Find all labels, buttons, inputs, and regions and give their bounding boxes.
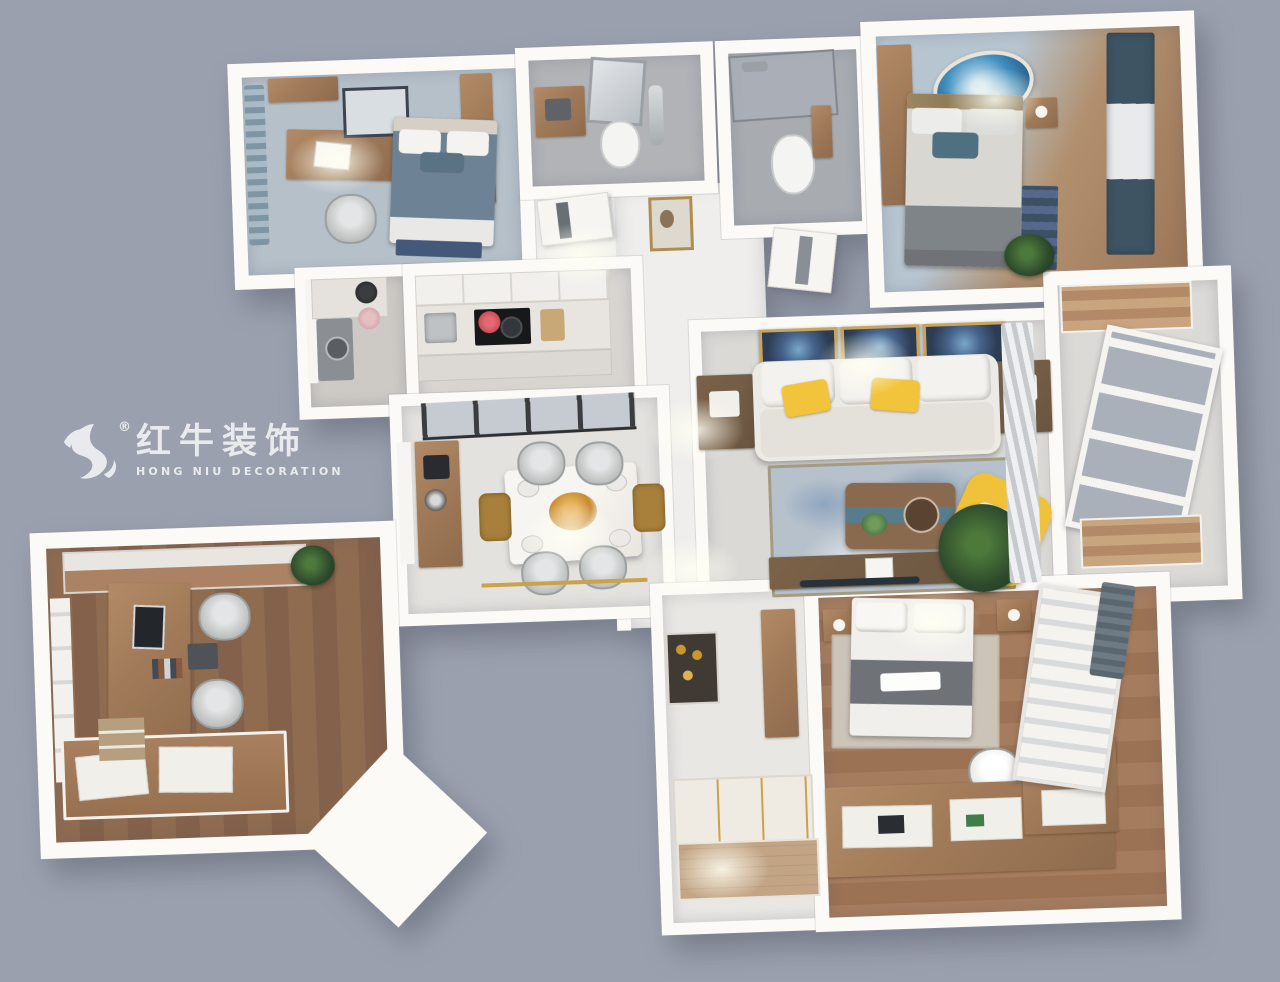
shower-set	[648, 85, 664, 145]
desk-books	[152, 658, 183, 679]
yellow-pillow-2	[870, 377, 920, 412]
side-table-left	[696, 374, 755, 450]
watermark: ® 红牛装饰 HONG NIU DECORATION	[60, 420, 330, 500]
shelf-niche	[811, 105, 833, 158]
laptop	[313, 141, 352, 171]
study-chair-1	[198, 592, 252, 642]
registered-trademark: ®	[118, 420, 131, 435]
wall-shelf	[268, 76, 339, 102]
brand-name-english: HONG NIU DECORATION	[136, 465, 344, 478]
nightstand-right	[996, 598, 1031, 631]
mirror	[586, 57, 646, 127]
vanity-cabinet	[534, 86, 586, 138]
monitor	[132, 605, 166, 650]
mattress-pad-2	[159, 747, 233, 793]
gold-armchair-left	[478, 493, 512, 542]
study-wall-shelf	[187, 643, 218, 670]
tatami-bedroom-bed	[850, 598, 974, 738]
tatami-bed	[61, 730, 290, 820]
brand-name-chinese: 红牛装饰	[136, 424, 344, 461]
sink	[424, 312, 457, 343]
gold-framed-art	[648, 196, 694, 252]
toilet-2	[770, 134, 816, 195]
toilet	[599, 120, 641, 169]
master-bed	[904, 94, 1023, 268]
study-chair-2	[191, 678, 245, 730]
balcony-cabinet-bottom	[1080, 514, 1204, 568]
floral-centerpiece	[548, 491, 599, 532]
display-niche	[665, 631, 719, 705]
desk-chair	[324, 193, 378, 245]
bed-rug	[396, 239, 483, 258]
dining-chair-1	[517, 441, 567, 487]
floorplan-render-page: { "watermark": { "brand_cn": "红牛装饰", "br…	[0, 0, 1280, 960]
sideboard	[415, 440, 463, 567]
door-master	[767, 227, 837, 293]
gold-armchair-right	[632, 483, 666, 532]
dining-chair-2	[575, 441, 625, 487]
master-curtains	[1107, 33, 1155, 255]
washing-machine	[316, 318, 354, 381]
dining-chair-3	[520, 551, 570, 597]
shower-head	[741, 61, 767, 72]
shoe-cabinet-base	[677, 838, 821, 901]
entry-tall-cabinet	[761, 609, 799, 738]
cutting-board	[540, 309, 565, 342]
nightstand	[1025, 97, 1058, 128]
built-in-closet	[672, 774, 814, 845]
balcony-cabinet-top	[1059, 281, 1193, 334]
laptop-2	[878, 815, 905, 834]
hongniu-bull-logo: ®	[60, 420, 122, 484]
double-bed	[389, 117, 497, 247]
photo-wall	[98, 717, 145, 761]
door-bathroom	[536, 192, 613, 246]
